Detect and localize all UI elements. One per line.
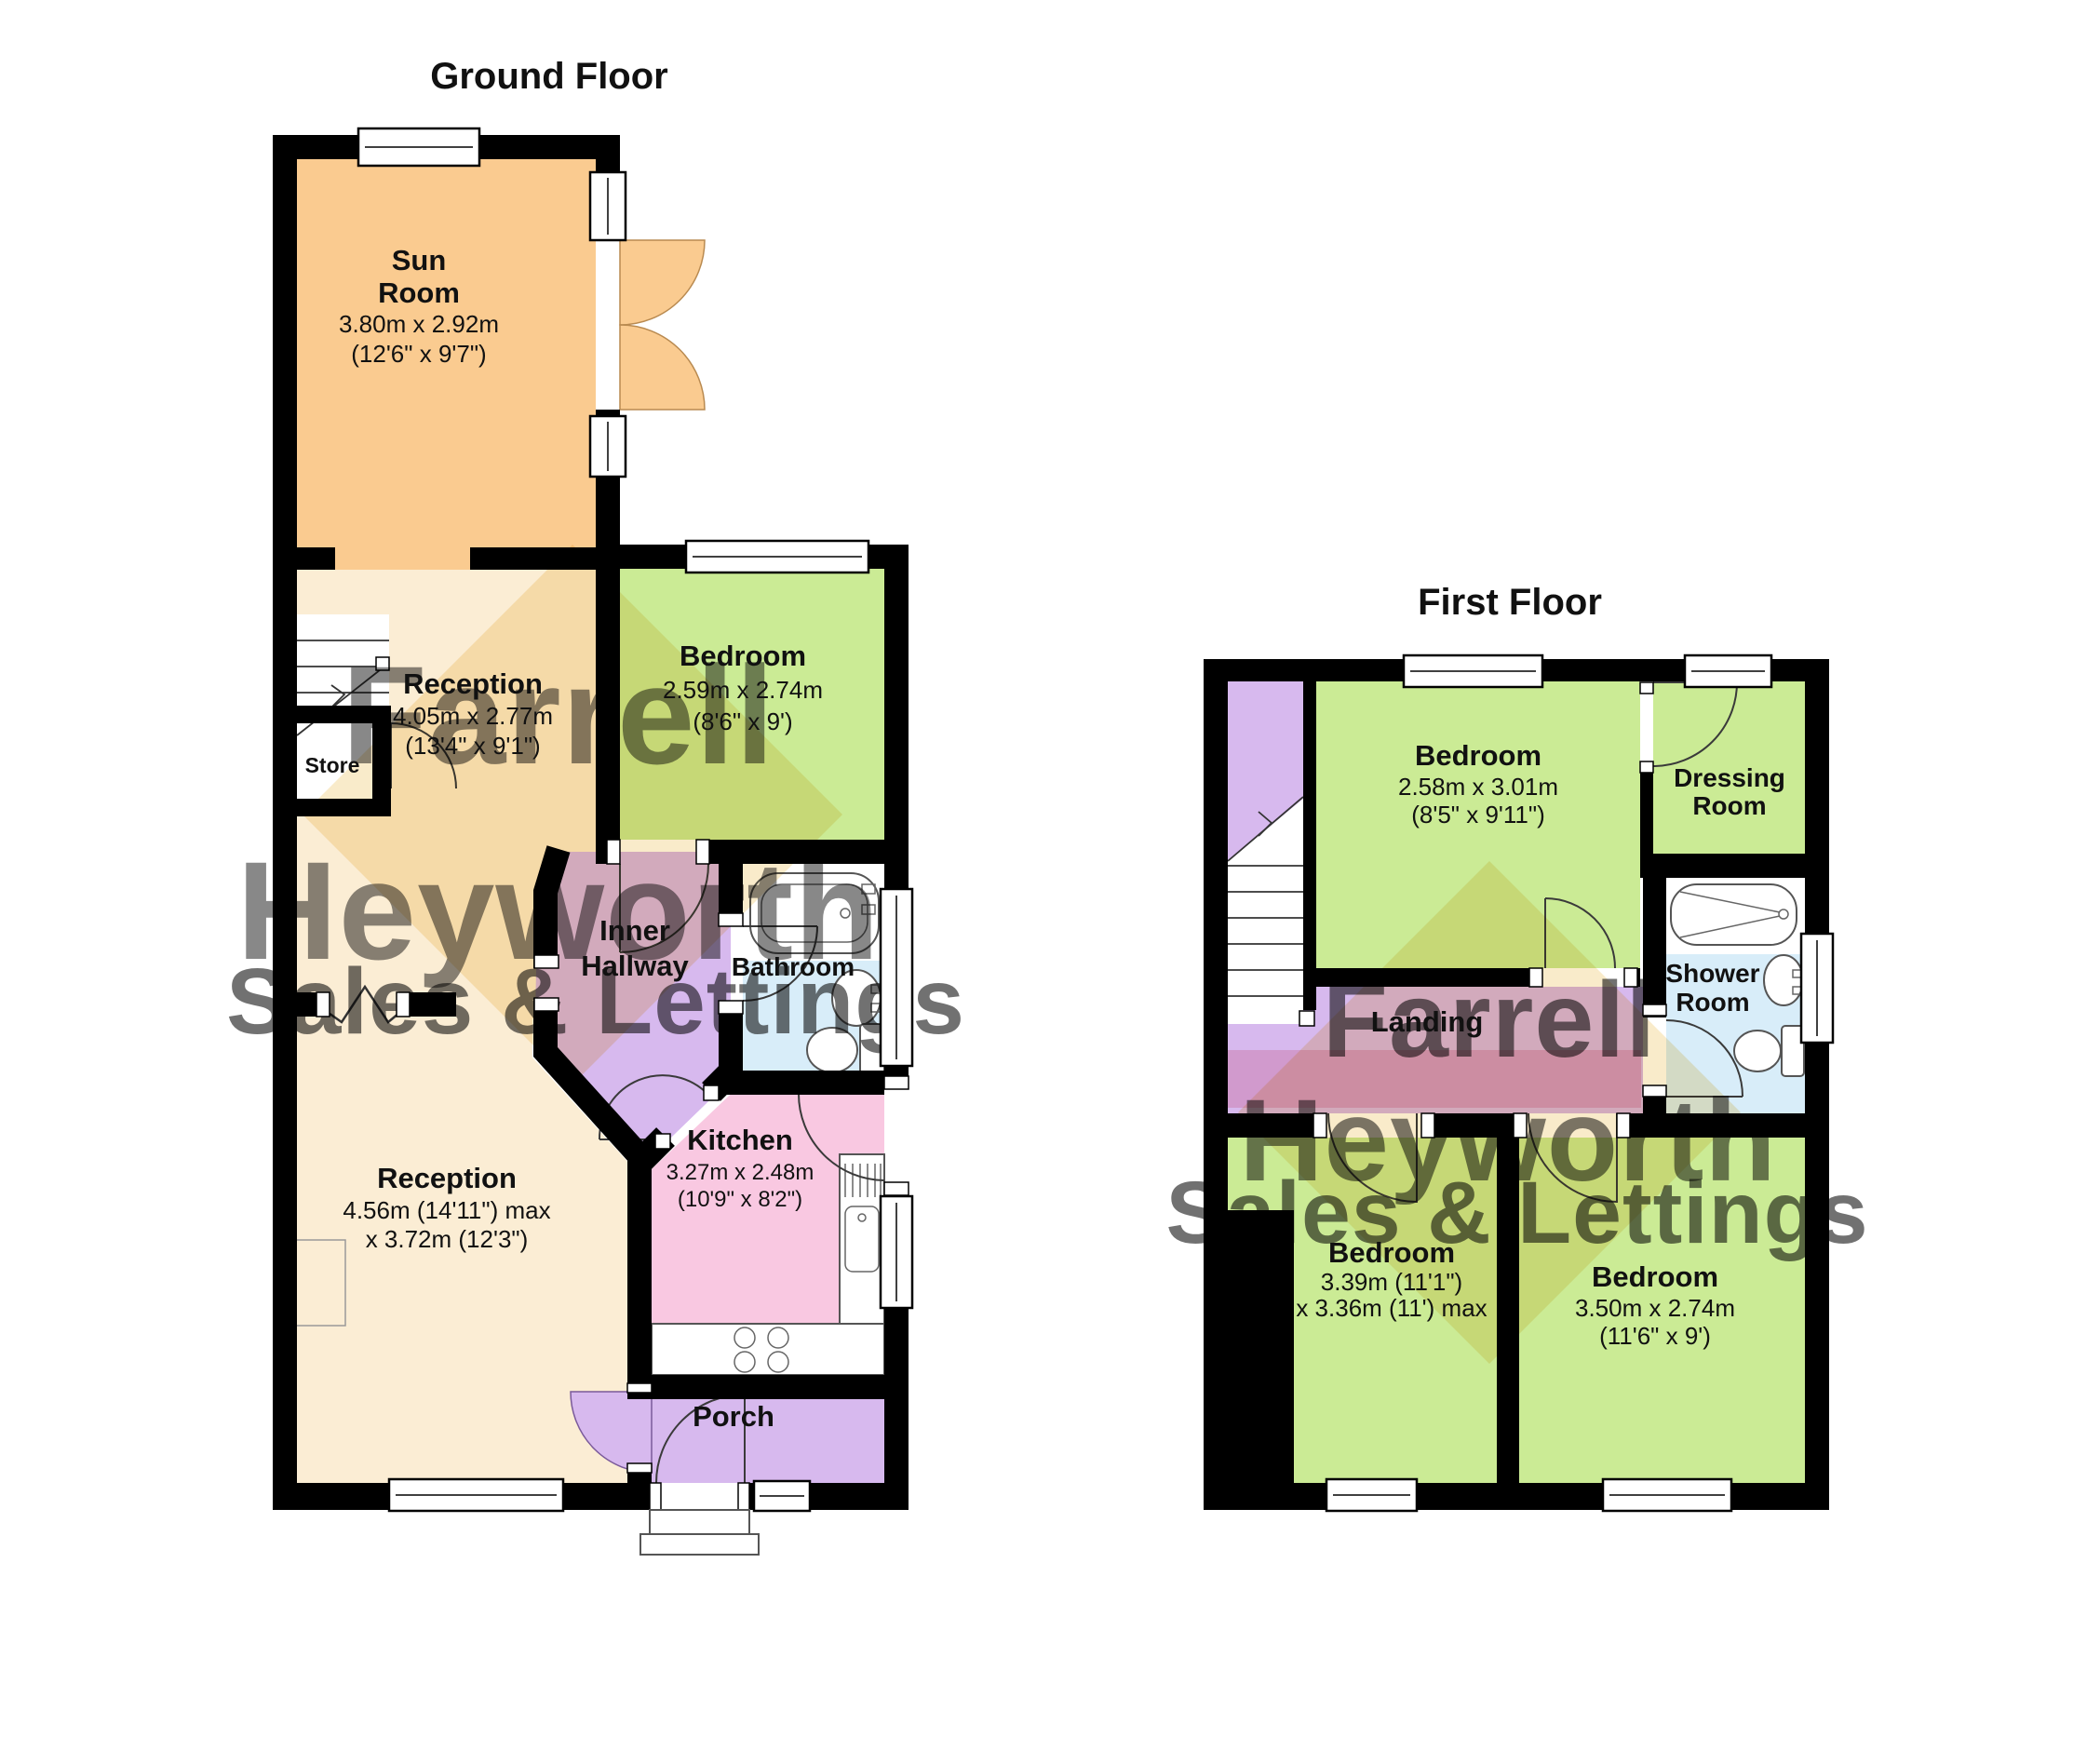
svg-text:2.59m x 2.74m: 2.59m x 2.74m <box>663 676 823 704</box>
title-first-floor: First Floor <box>1418 582 1602 623</box>
kitchen-counter-symbol <box>652 1324 884 1375</box>
svg-text:3.27m x 2.48m: 3.27m x 2.48m <box>666 1160 814 1185</box>
title-ground-floor: Ground Floor <box>430 56 668 97</box>
sink-symbol-first <box>1764 955 1803 1005</box>
svg-text:Room: Room <box>378 276 460 309</box>
svg-text:(8'6" x 9'): (8'6" x 9') <box>693 707 792 735</box>
svg-text:Inner: Inner <box>599 914 670 947</box>
svg-text:Sun: Sun <box>392 244 447 276</box>
french-doors-sun-room <box>620 240 705 410</box>
porch-step-symbol <box>650 1510 749 1534</box>
svg-text:Room: Room <box>1676 988 1749 1017</box>
svg-text:x 3.36m (11') max: x 3.36m (11') max <box>1296 1294 1487 1322</box>
shower-bath-symbol <box>1671 884 1797 945</box>
label-landing: Landing <box>1371 1005 1484 1038</box>
svg-text:Reception: Reception <box>403 667 543 700</box>
svg-text:Shower: Shower <box>1665 959 1759 988</box>
floorplan-image: Farrell Heyworth Sales & Lettings Farrel… <box>0 0 2100 1738</box>
label-reception-top: Reception 4.05m x 2.77m (13'4" x 9'1") <box>393 667 553 760</box>
staircase-first <box>1228 681 1314 1026</box>
svg-text:(12'6" x 9'7"): (12'6" x 9'7") <box>351 340 486 368</box>
label-bedroom-front: Bedroom 2.58m x 3.01m (8'5" x 9'11") <box>1398 739 1558 829</box>
label-porch: Porch <box>693 1400 774 1433</box>
svg-text:3.50m x 2.74m: 3.50m x 2.74m <box>1575 1294 1735 1322</box>
svg-text:Reception: Reception <box>377 1162 517 1194</box>
svg-text:2.58m x 3.01m: 2.58m x 3.01m <box>1398 773 1558 801</box>
svg-text:(11'6" x 9'): (11'6" x 9') <box>1599 1322 1711 1350</box>
svg-text:4.05m x 2.77m: 4.05m x 2.77m <box>393 702 553 730</box>
svg-text:Dressing: Dressing <box>1674 763 1785 792</box>
furniture-symbol <box>296 1240 345 1326</box>
label-store: Store <box>305 753 360 777</box>
svg-text:3.80m x 2.92m: 3.80m x 2.92m <box>339 310 499 338</box>
svg-text:Bedroom: Bedroom <box>680 640 806 672</box>
svg-text:Kitchen: Kitchen <box>687 1124 793 1156</box>
toilet-symbol-first <box>1734 1026 1804 1076</box>
svg-text:(13'4" x 9'1"): (13'4" x 9'1") <box>405 732 540 760</box>
svg-text:Bedroom: Bedroom <box>1415 739 1541 772</box>
label-kitchen: Kitchen 3.27m x 2.48m (10'9" x 8'2") <box>666 1124 814 1212</box>
svg-text:3.39m (11'1"): 3.39m (11'1") <box>1321 1268 1462 1296</box>
svg-text:Hallway: Hallway <box>581 950 689 982</box>
svg-text:4.56m (14'11") max: 4.56m (14'11") max <box>343 1196 550 1224</box>
svg-text:Bedroom: Bedroom <box>1328 1236 1455 1269</box>
svg-text:x 3.72m (12'3"): x 3.72m (12'3") <box>366 1225 529 1253</box>
svg-text:(10'9" x 8'2"): (10'9" x 8'2") <box>678 1187 802 1212</box>
svg-text:Bedroom: Bedroom <box>1592 1260 1718 1293</box>
svg-text:(8'5" x 9'11"): (8'5" x 9'11") <box>1411 801 1545 829</box>
svg-text:Room: Room <box>1692 791 1766 820</box>
label-shower-room: Shower Room <box>1665 959 1759 1017</box>
label-bathroom: Bathroom <box>732 952 855 981</box>
porch-step-symbol-2 <box>640 1534 759 1555</box>
